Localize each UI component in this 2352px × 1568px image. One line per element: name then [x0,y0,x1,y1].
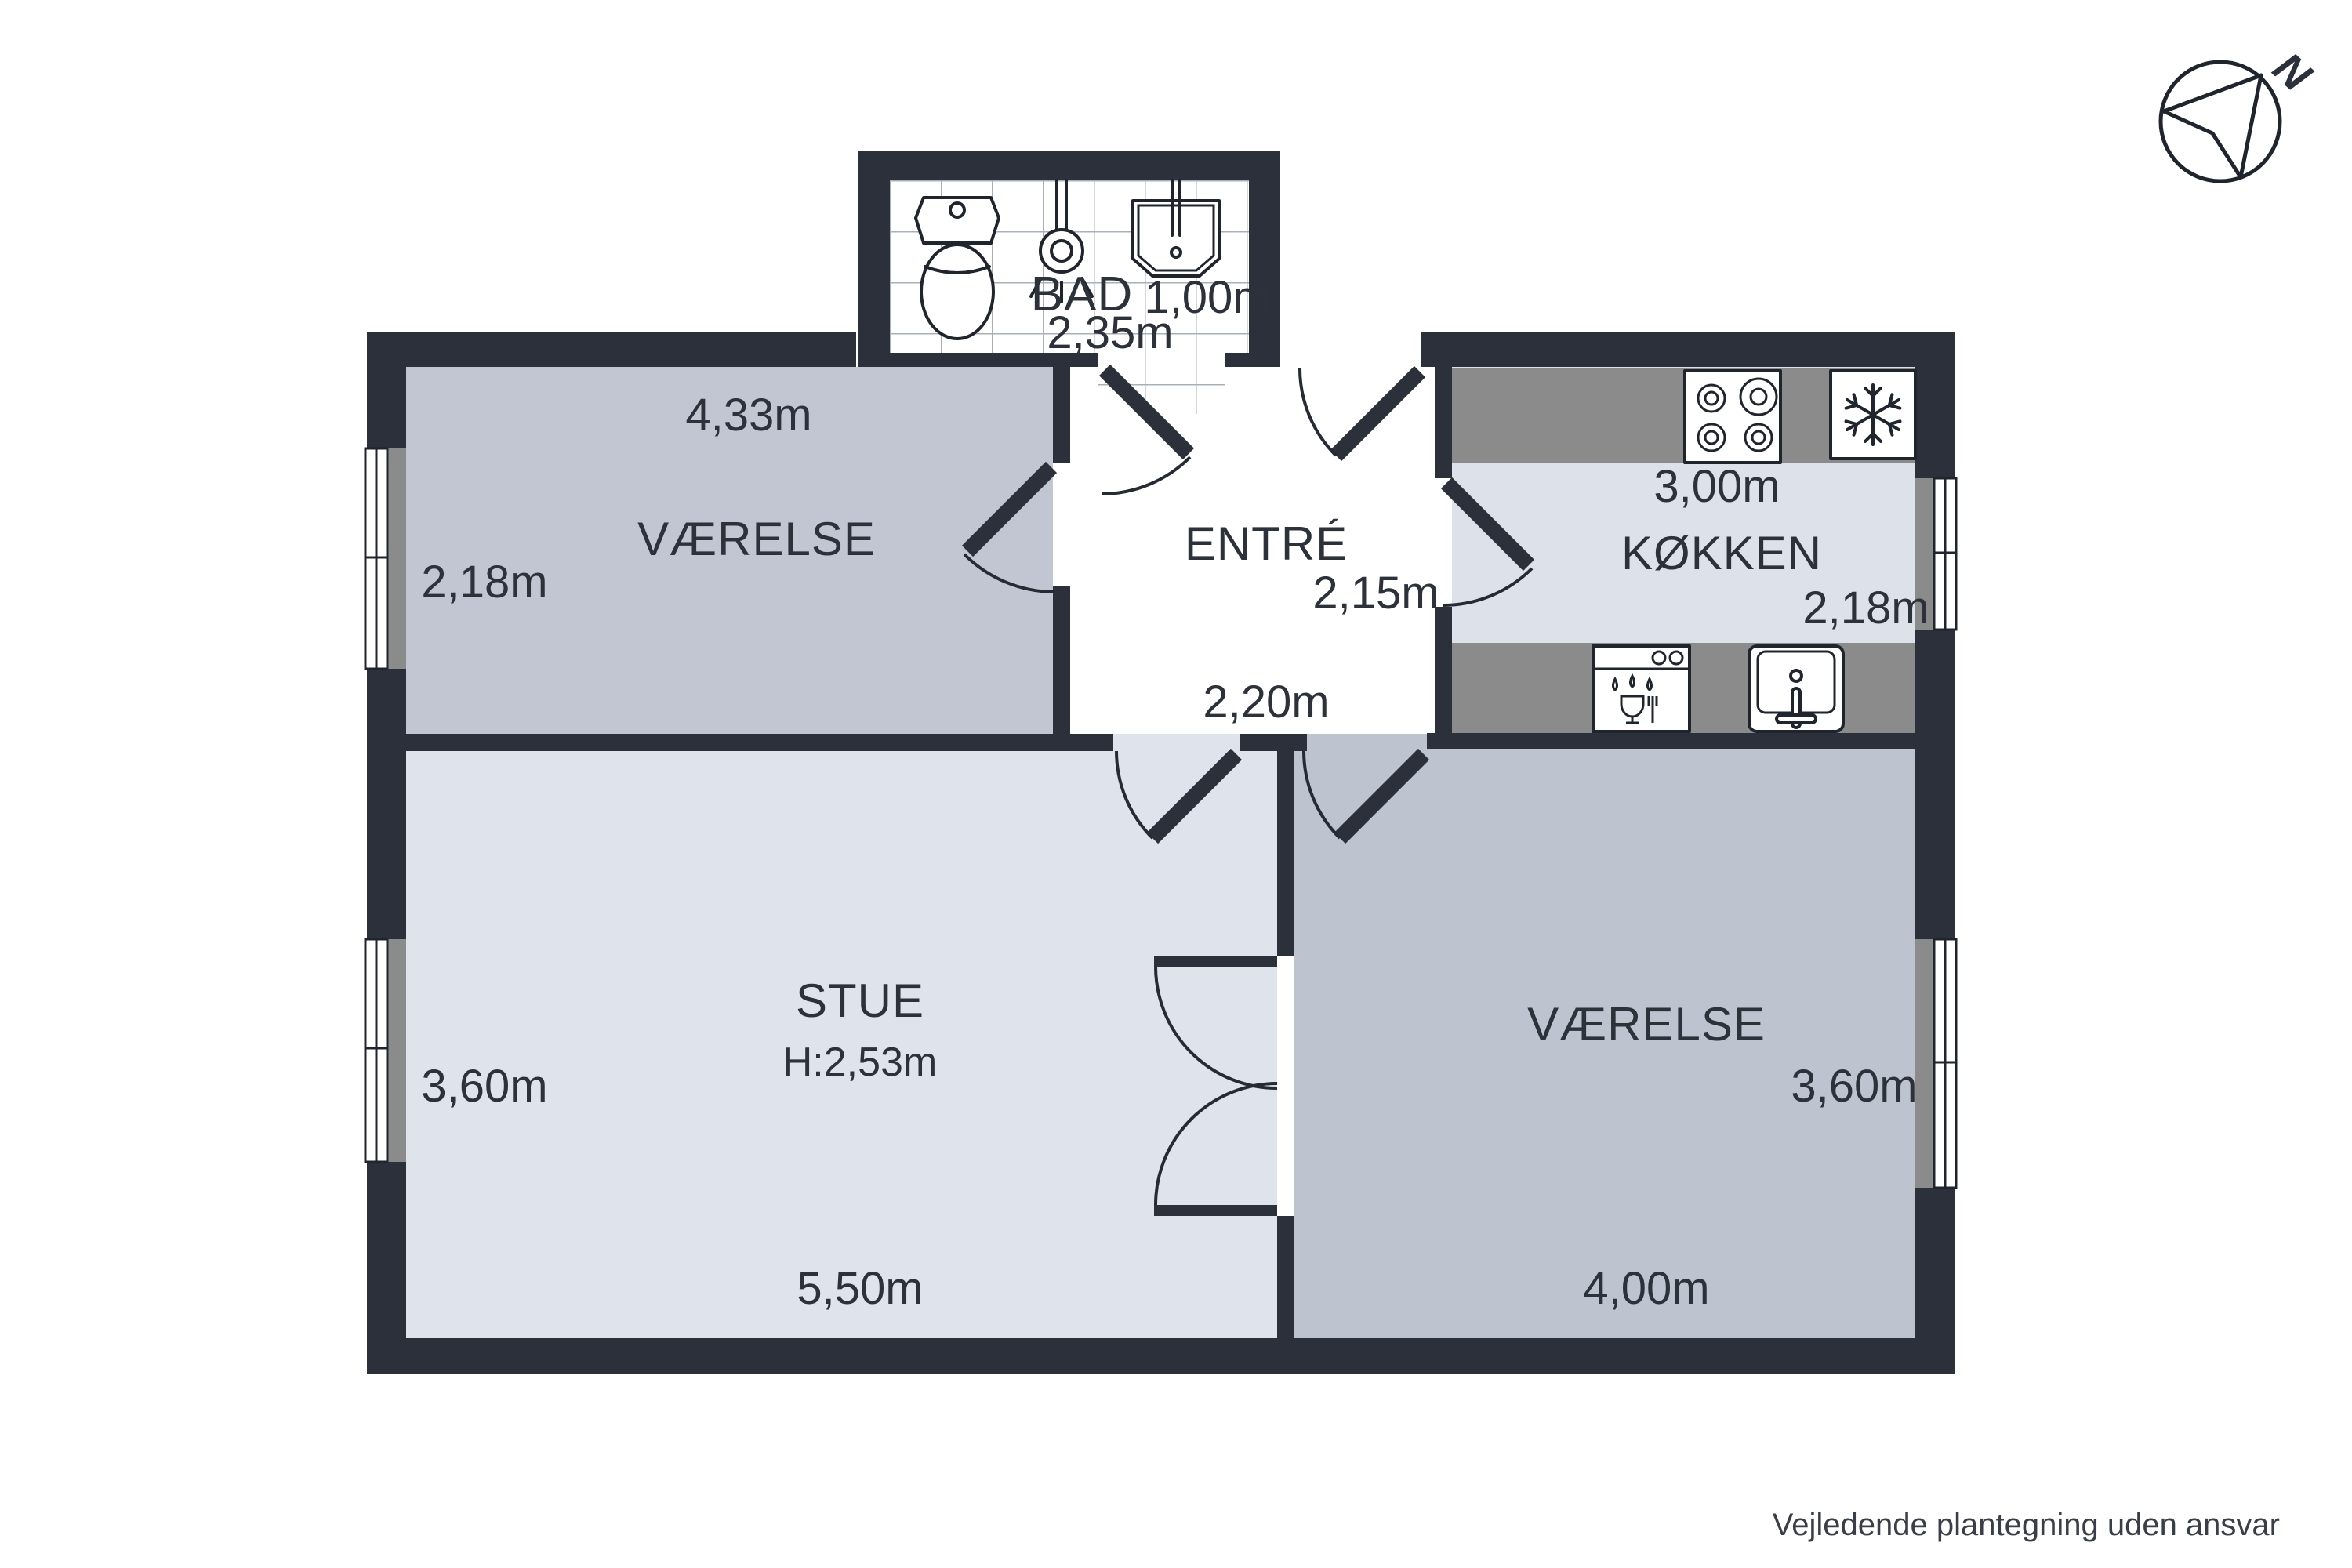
vaerelse2-label: VÆRELSE [1527,998,1766,1051]
stue-label: STUE [796,975,924,1027]
wall-entre-south-mid [1240,734,1307,751]
entre-label: ENTRÉ [1185,517,1348,570]
stue-ceiling: H:2,53m [783,1040,938,1085]
fridge-snowflake-icon [1831,371,1915,459]
vaerelse1-depth: 2,18m [421,557,547,608]
dishwasher-icon [1593,646,1690,731]
stue-floor [406,734,1277,1338]
wall-kitchen-west-upper [1435,367,1452,478]
vaerelse2-depth: 3,60m [1791,1061,1917,1112]
bad-width: 2,35m [1047,307,1173,358]
stue-depth: 3,60m [421,1061,547,1112]
vaerelse1-width: 4,33m [685,390,811,441]
entre-depth: 2,15m [1312,568,1439,619]
koekken-label: KØKKEN [1621,527,1822,579]
vaerelse2-width: 4,00m [1583,1263,1709,1314]
bathroom-wall-left [858,151,890,367]
wall-vaerelse1-south [405,734,1113,751]
vaerelse1-window [365,448,406,669]
wall-divider-lower [1277,1216,1294,1338]
vaerelse1-label: VÆRELSE [637,513,876,565]
bathroom-wall-south-stub [1225,353,1249,367]
bathroom-wall-top [858,151,1280,180]
wall-kitchen-south [1427,733,1915,749]
wall-vaerelse1-east-upper [1053,367,1070,463]
floorplan-canvas: BAD 1,00m 2,35m 4,33m VÆRELSE 2,18m ENTR… [0,0,2352,1568]
disclaimer-text: Vejledende plantegning uden ansvar [1773,1508,2280,1542]
kitchen-sink-icon [1749,646,1843,731]
wall-top-right [1421,332,1955,367]
floorplan-page: BAD 1,00m 2,35m 4,33m VÆRELSE 2,18m ENTR… [0,0,2352,1568]
wall-bottom [367,1338,1955,1374]
wall-divider-upper [1277,751,1294,956]
toilet-icon [916,198,999,339]
stue-window [365,939,406,1162]
bathroom-wall-right [1249,151,1280,367]
wall-kitchen-west-lower [1435,607,1452,733]
entre-width: 2,20m [1203,677,1329,728]
stue-width: 5,50m [797,1263,923,1314]
koekken-width: 3,00m [1653,461,1780,512]
wall-top-left [367,332,856,367]
koekken-depth: 2,18m [1802,583,1929,633]
vaerelse2-window [1915,939,1956,1188]
stove-icon [1685,371,1780,463]
wall-vaerelse1-east-lower [1053,586,1070,751]
